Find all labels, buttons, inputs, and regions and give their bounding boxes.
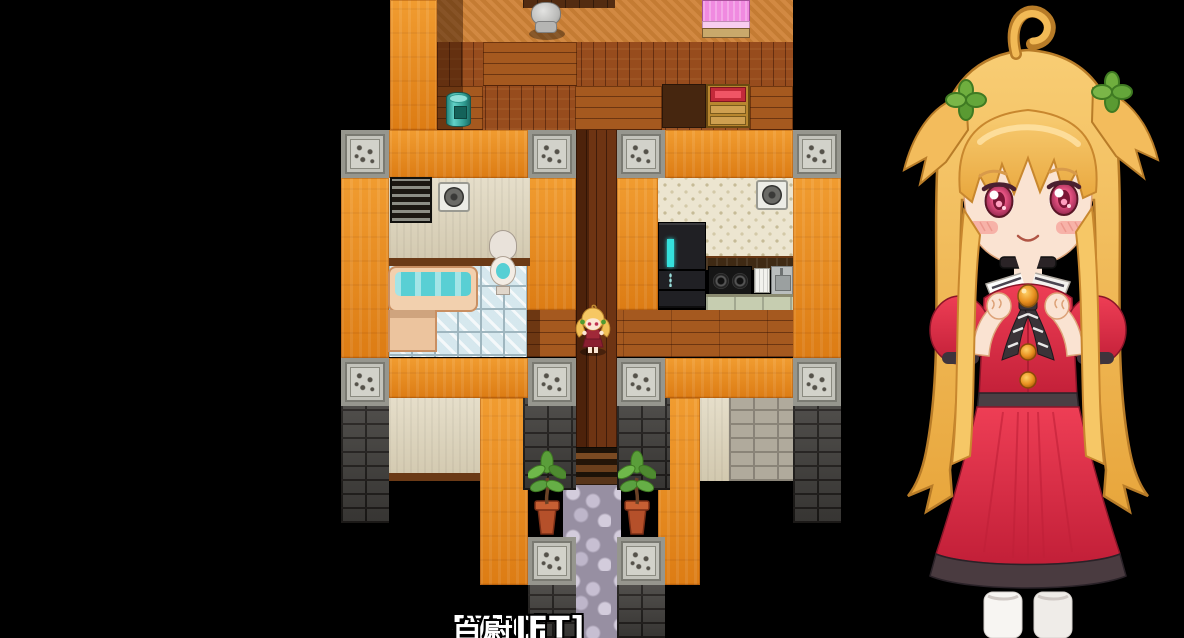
toilet-base [496, 286, 510, 295]
chair-seat [535, 21, 557, 33]
wall [389, 358, 528, 398]
brooch [1018, 285, 1038, 307]
button [1020, 372, 1036, 388]
game-screen: [ESC] 狀態 [SHIFT] 緩速 [V] 自慰 [0, 0, 1184, 638]
wall [793, 178, 841, 358]
wall [665, 130, 793, 178]
office-chair [529, 2, 565, 42]
stone-pillar [528, 358, 576, 406]
wall [341, 178, 389, 358]
sink-faucet [780, 268, 783, 275]
bed-frame [702, 28, 750, 38]
brick-wall [793, 398, 841, 523]
wall-base [389, 473, 480, 481]
stone-pillar [341, 130, 389, 178]
parquet-patch [575, 86, 662, 130]
wall [389, 130, 528, 178]
stone-pillar [341, 358, 389, 406]
hall-wood-floor [527, 310, 793, 357]
wall [480, 398, 528, 585]
potted-plant [618, 450, 656, 538]
bed-blanket [702, 0, 750, 22]
wall-fan [438, 182, 470, 212]
game-map-viewport[interactable] [0, 0, 870, 638]
bed [702, 0, 750, 40]
fridge-display [667, 239, 674, 267]
player-sprite [574, 302, 612, 356]
sink-basin [775, 275, 791, 291]
wall [665, 358, 793, 398]
trash-barrel [446, 92, 471, 127]
brick-wall [341, 398, 389, 523]
stone-pillar [793, 358, 841, 406]
stone-pillar [528, 537, 576, 585]
brick-wall [617, 585, 665, 638]
wall-shadow [527, 310, 540, 357]
drawer-chest [706, 84, 750, 128]
house-wall [700, 398, 729, 481]
bathtub [388, 266, 478, 312]
dish-rack [754, 268, 770, 293]
stone-steps [572, 447, 621, 485]
potted-plant [528, 450, 566, 538]
wall [527, 178, 576, 310]
stove-burner [713, 273, 729, 289]
house-wall [389, 398, 480, 481]
parquet-patch [483, 42, 577, 86]
floor-shadow-tile [662, 84, 706, 128]
fridge-seam [659, 269, 705, 271]
stone-pillar [617, 537, 665, 585]
wall-fan [756, 180, 788, 210]
stone-pillar [617, 358, 665, 406]
kitchen-sink [771, 266, 793, 295]
wall [390, 0, 437, 130]
brick-wall [729, 398, 793, 481]
dresser-drawer [710, 105, 746, 114]
stove [708, 266, 752, 296]
dresser-drawer [710, 116, 746, 125]
wall [617, 178, 658, 310]
parquet-patch [750, 86, 793, 130]
refrigerator [658, 222, 706, 309]
stone-pillar [617, 130, 665, 178]
fist [987, 293, 1011, 319]
toilet [488, 230, 518, 296]
toilet-water [496, 263, 510, 279]
fridge-seam [659, 289, 705, 291]
counter-base [706, 294, 793, 310]
stone-pillar [793, 130, 841, 178]
bath-water [395, 272, 471, 296]
bathtub-step [388, 310, 437, 352]
ventilation-grille [390, 177, 432, 223]
stone-pillar [528, 130, 576, 178]
wall-shadow [576, 130, 589, 447]
fridge-buttons [669, 273, 672, 287]
button [1020, 344, 1036, 360]
dresser-top [710, 87, 746, 102]
character-portrait [868, 0, 1184, 638]
fist [1045, 293, 1069, 319]
stove-burner [732, 273, 748, 289]
